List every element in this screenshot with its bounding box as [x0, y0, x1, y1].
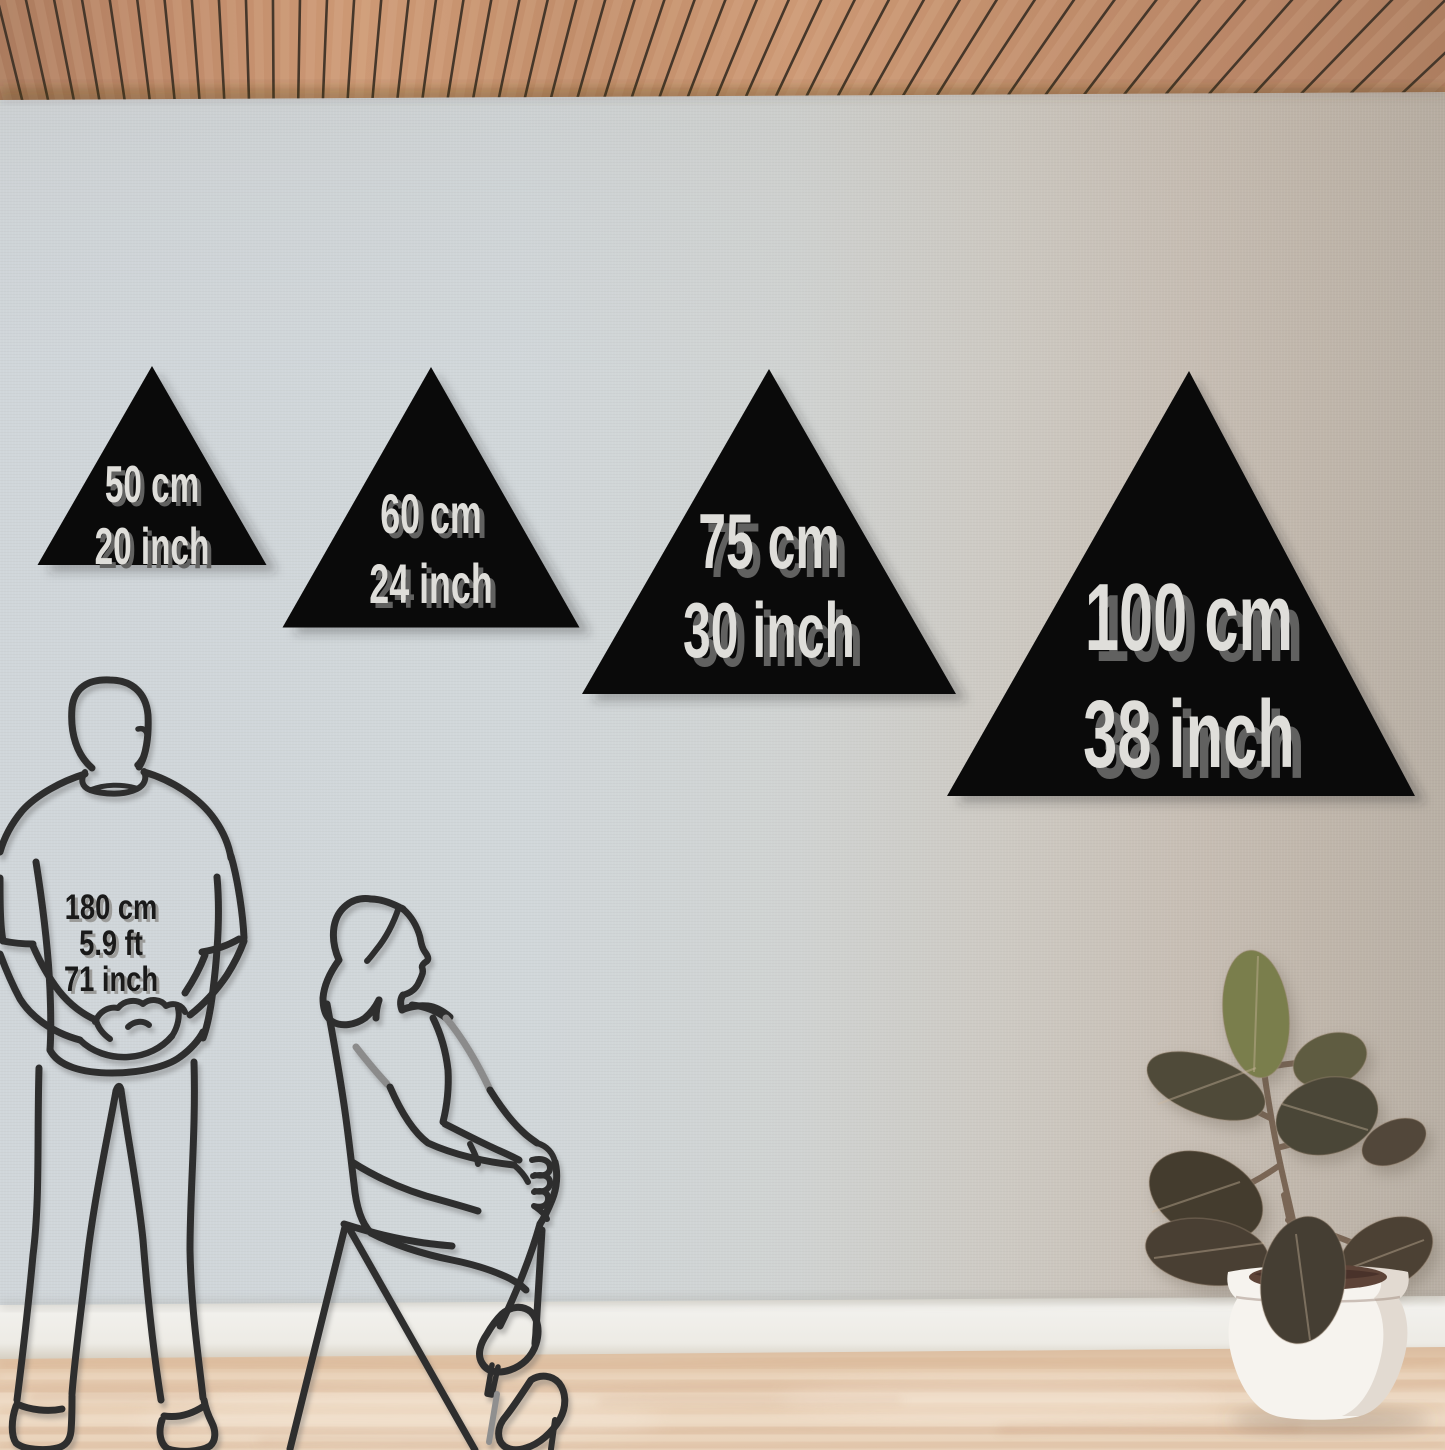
svg-text:75 cm: 75 cm [698, 498, 840, 585]
svg-text:71 inch: 71 inch [64, 960, 158, 999]
svg-text:24 inch: 24 inch [369, 552, 492, 615]
svg-text:30 inch: 30 inch [683, 587, 855, 674]
svg-text:20 inch: 20 inch [95, 518, 210, 576]
svg-text:5.9 ft: 5.9 ft [79, 924, 143, 963]
svg-text:38 inch: 38 inch [1083, 681, 1295, 788]
svg-text:180 cm: 180 cm [65, 888, 158, 927]
svg-text:100 cm: 100 cm [1085, 564, 1293, 671]
svg-text:50 cm: 50 cm [105, 456, 199, 514]
svg-text:60 cm: 60 cm [380, 482, 482, 545]
